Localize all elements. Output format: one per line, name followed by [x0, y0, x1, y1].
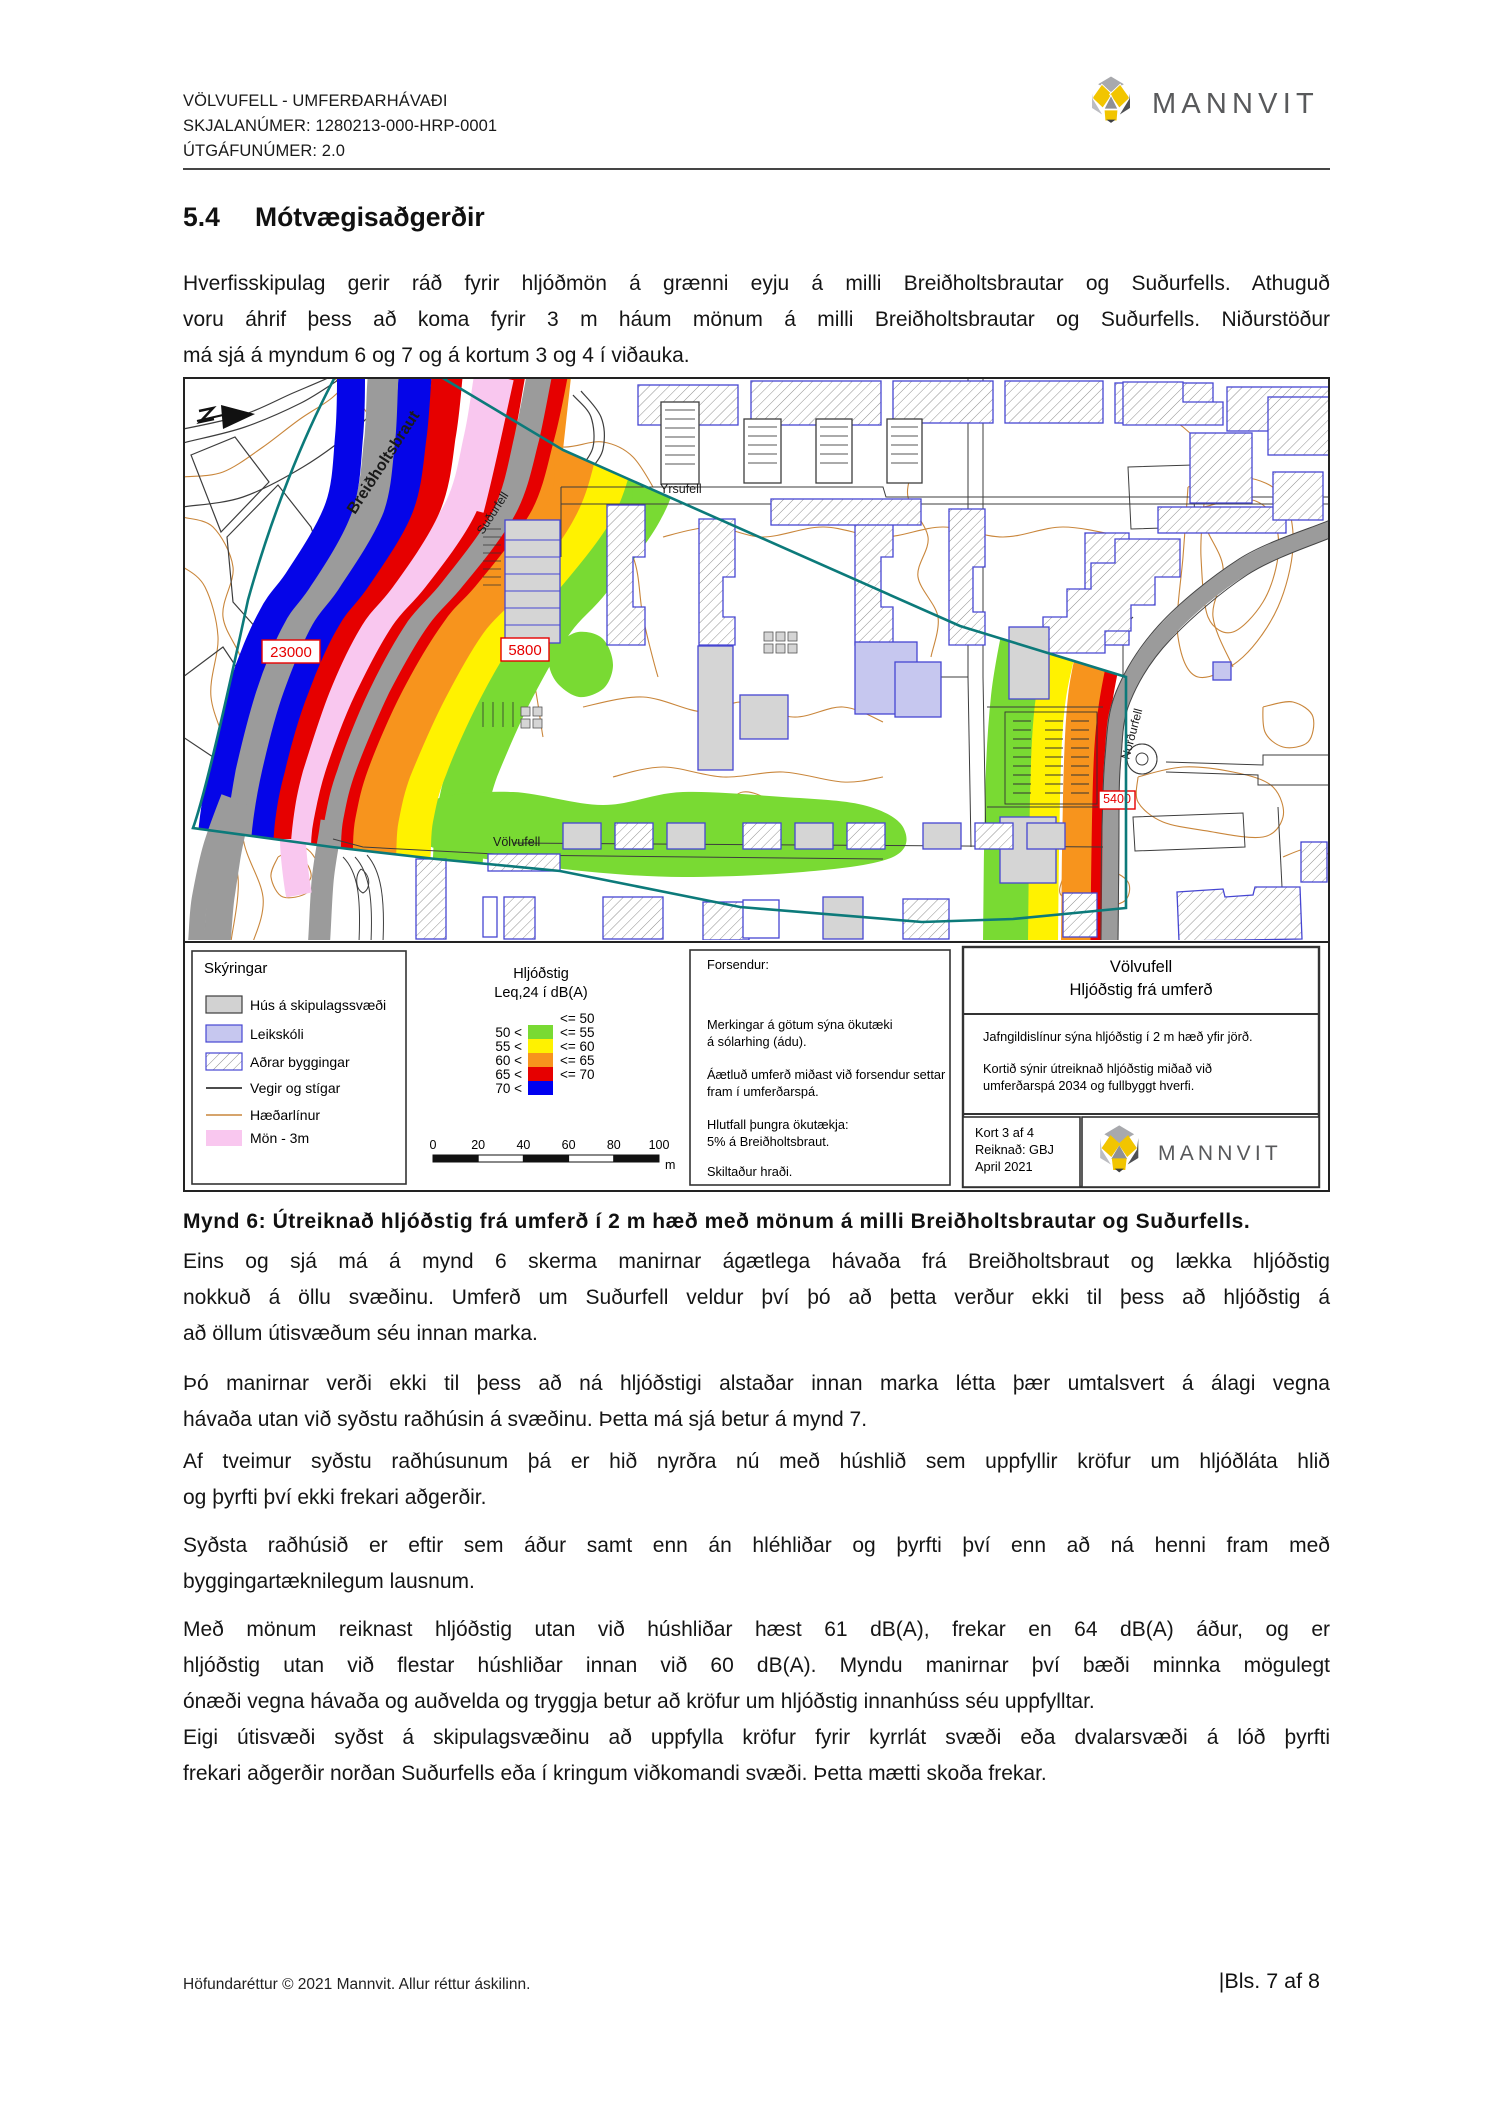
- svg-text:Völvufell: Völvufell: [493, 835, 540, 849]
- svg-text:MANNVIT: MANNVIT: [1158, 1142, 1282, 1165]
- svg-text:60: 60: [562, 1138, 576, 1152]
- svg-text:60 <: 60 <: [495, 1053, 522, 1068]
- svg-text:20: 20: [471, 1138, 485, 1152]
- svg-text:<= 60: <= 60: [560, 1039, 595, 1054]
- svg-text:umferðarspá 2034 og fullbyggt: umferðarspá 2034 og fullbyggt hverfi.: [983, 1078, 1194, 1093]
- svg-text:40: 40: [516, 1138, 530, 1152]
- svg-text:Leq,24 í dB(A): Leq,24 í dB(A): [494, 985, 588, 1001]
- svg-text:Kortið sýnir útreiknað hljóðst: Kortið sýnir útreiknað hljóðstig miðað v…: [983, 1061, 1212, 1076]
- svg-text:<= 50: <= 50: [560, 1011, 595, 1026]
- svg-text:MANNVIT: MANNVIT: [1152, 88, 1319, 120]
- svg-text:Völvufell: Völvufell: [1110, 958, 1172, 976]
- svg-text:<= 55: <= 55: [560, 1025, 595, 1040]
- svg-text:Áætluð umferð miðast við forse: Áætluð umferð miðast við forsendur setta…: [707, 1067, 946, 1082]
- svg-text:Aðrar byggingar: Aðrar byggingar: [250, 1054, 350, 1070]
- svg-text:Yrsufell: Yrsufell: [660, 482, 702, 496]
- svg-text:50 <: 50 <: [495, 1025, 522, 1040]
- svg-text:Kort 3 af 4: Kort 3 af 4: [975, 1125, 1034, 1140]
- svg-text:70 <: 70 <: [495, 1081, 522, 1096]
- svg-text:<= 70: <= 70: [560, 1067, 595, 1082]
- svg-text:m: m: [665, 1158, 675, 1172]
- svg-text:Forsendur:: Forsendur:: [707, 957, 769, 972]
- svg-text:23000: 23000: [270, 644, 312, 661]
- svg-text:100: 100: [649, 1138, 670, 1152]
- svg-text:Hljóðstig frá umferð: Hljóðstig frá umferð: [1069, 981, 1212, 999]
- svg-text:Merkingar á götum sýna ökutæki: Merkingar á götum sýna ökutæki: [707, 1017, 893, 1032]
- svg-text:65 <: 65 <: [495, 1067, 522, 1082]
- svg-text:Mön - 3m: Mön - 3m: [250, 1130, 309, 1146]
- svg-text:55 <: 55 <: [495, 1039, 522, 1054]
- svg-text:Hlutfall þungra ökutækja:: Hlutfall þungra ökutækja:: [707, 1117, 849, 1132]
- svg-text:Skýringar: Skýringar: [204, 960, 267, 977]
- svg-text:Leikskóli: Leikskóli: [250, 1026, 304, 1042]
- svg-text:0: 0: [430, 1138, 437, 1152]
- svg-text:5800: 5800: [508, 642, 541, 659]
- svg-text:Skiltaður hraði.: Skiltaður hraði.: [707, 1164, 792, 1179]
- svg-text:Hæðarlínur: Hæðarlínur: [250, 1107, 320, 1123]
- svg-text:April 2021: April 2021: [975, 1159, 1033, 1174]
- svg-text:5% á Breiðholtsbraut.: 5% á Breiðholtsbraut.: [707, 1134, 829, 1149]
- svg-text:Reiknað: GBJ: Reiknað: GBJ: [975, 1142, 1054, 1157]
- svg-text:Hús á skipulagssvæði: Hús á skipulagssvæði: [250, 997, 386, 1013]
- svg-text:80: 80: [607, 1138, 621, 1152]
- svg-text:<= 65: <= 65: [560, 1053, 595, 1068]
- svg-text:Vegir og stígar: Vegir og stígar: [250, 1080, 341, 1096]
- svg-text:fram í umferðarspá.: fram í umferðarspá.: [707, 1084, 819, 1099]
- svg-text:Hljóðstig: Hljóðstig: [513, 966, 569, 982]
- svg-text:Jafngildislínur sýna hljóðstig: Jafngildislínur sýna hljóðstig í 2 m hæð…: [983, 1029, 1253, 1044]
- svg-text:á sólarhing (ádu).: á sólarhing (ádu).: [707, 1034, 807, 1049]
